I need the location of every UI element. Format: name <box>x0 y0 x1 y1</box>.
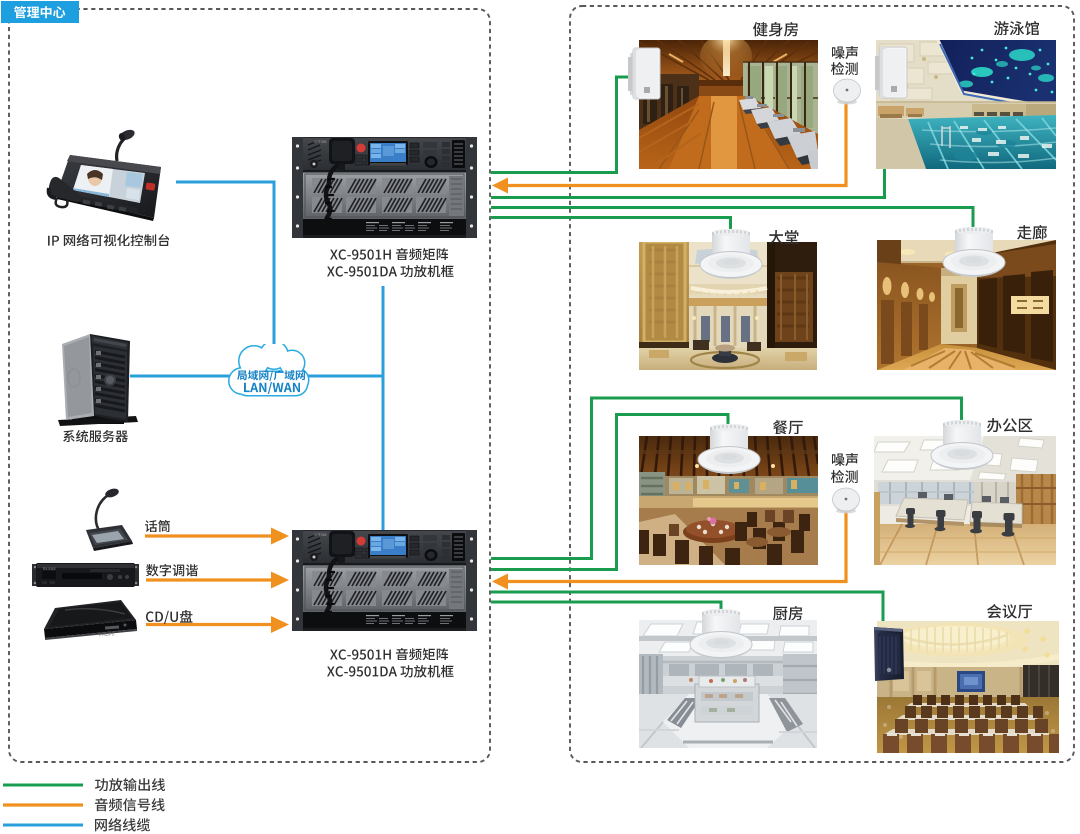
svg-text:XPTOM: XPTOM <box>314 140 326 144</box>
svg-text:XPTOM: XPTOM <box>314 533 326 537</box>
svg-text:RX-9118: RX-9118 <box>43 567 56 571</box>
svg-text:PHILIPS: PHILIPS <box>99 631 115 637</box>
